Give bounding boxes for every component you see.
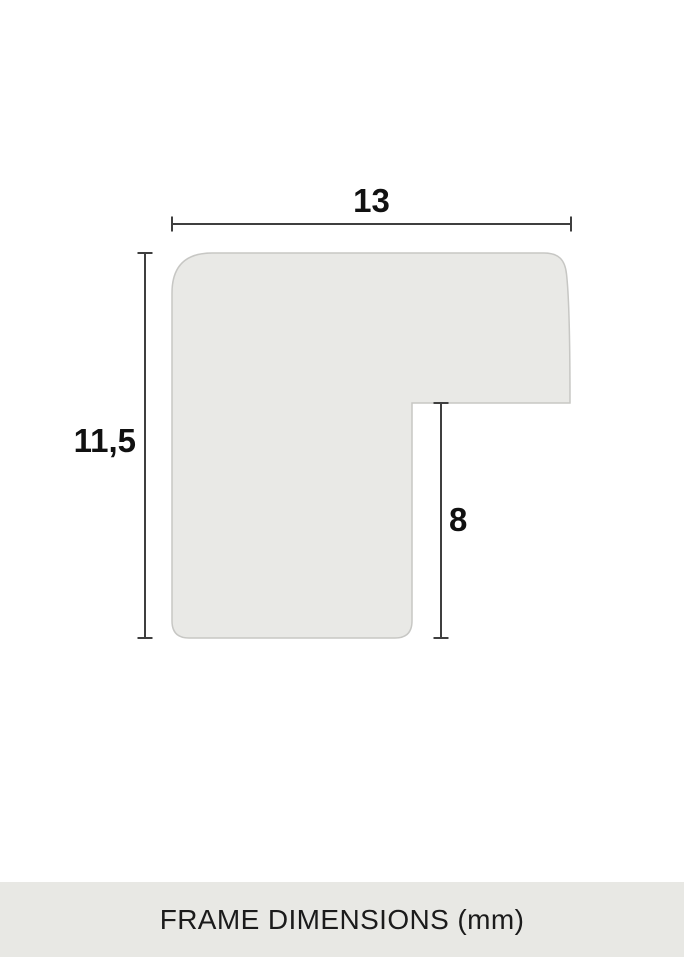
notch-dimension-label: 8 (449, 503, 467, 536)
footer-bar: FRAME DIMENSIONS (mm) (0, 882, 684, 957)
frame-dimensions-page: 13 11,5 8 FRAME DIMENSIONS (mm) (0, 0, 684, 957)
width-dimension-label: 13 (172, 184, 571, 217)
height-dimension-line (138, 253, 153, 638)
notch-dimension-line (434, 403, 449, 638)
frame-profile-shape (172, 253, 570, 638)
footer-title: FRAME DIMENSIONS (mm) (160, 904, 525, 936)
height-dimension-label: 11,5 (30, 424, 136, 457)
